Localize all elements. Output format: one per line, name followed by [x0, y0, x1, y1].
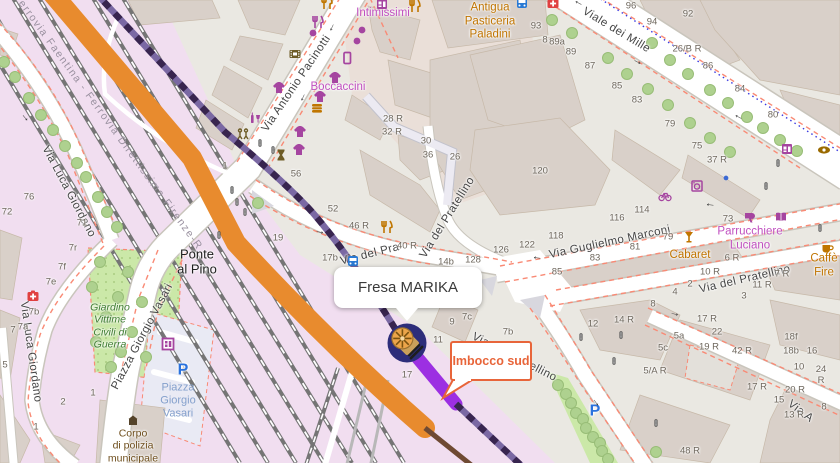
- tree: [722, 97, 734, 109]
- tlight-icon: [617, 331, 626, 340]
- callout-label: Imbocco sud: [452, 354, 529, 368]
- callout-joint: [455, 376, 471, 381]
- tlight-icon: [269, 146, 278, 155]
- tree: [642, 83, 654, 95]
- tree: [115, 346, 127, 358]
- police-icon: [126, 413, 140, 427]
- tree: [704, 132, 716, 144]
- cutlery-icon: [408, 0, 422, 13]
- tree: [92, 191, 104, 203]
- tree: [71, 157, 83, 169]
- tree: [646, 37, 658, 49]
- tree: [111, 221, 123, 233]
- cup-icon: [820, 241, 834, 255]
- wine-icon: [248, 111, 262, 125]
- bike-icon: [658, 189, 672, 203]
- tlight-icon: [241, 208, 250, 217]
- dryer-icon: [743, 210, 757, 224]
- eye-icon: [817, 143, 831, 157]
- map-canvas[interactable]: Via Antonio PacinottiViale dei MilleVia …: [0, 0, 840, 463]
- tlight-icon: [652, 419, 661, 428]
- popup-title: Fresa MARIKA: [358, 279, 458, 296]
- tree: [23, 92, 35, 104]
- tree: [704, 84, 716, 96]
- tree: [122, 266, 134, 278]
- phone-icon: [340, 51, 354, 65]
- tlight-icon: [215, 231, 224, 240]
- tree: [664, 54, 676, 66]
- cocktail-icon: [682, 230, 696, 244]
- tree: [546, 14, 558, 26]
- tlight-icon: [577, 333, 586, 342]
- tlight-icon: [762, 182, 771, 191]
- tree: [684, 117, 696, 129]
- cutlery-icon: [320, 0, 334, 10]
- tree: [724, 146, 736, 158]
- shopwin-icon: [780, 142, 794, 156]
- dot-icon: [306, 26, 320, 40]
- tree: [741, 111, 753, 123]
- tshirt-icon: [293, 125, 307, 139]
- bus-icon: [346, 254, 360, 268]
- dot-icon: [350, 34, 364, 48]
- tree: [140, 351, 152, 363]
- tree: [101, 206, 113, 218]
- tlight-icon: [774, 159, 783, 168]
- hospital-icon: [26, 289, 40, 303]
- tree: [35, 109, 47, 121]
- map-base-tiles: [0, 0, 840, 463]
- tbm-marker[interactable]: [386, 322, 428, 364]
- tshirt-icon: [328, 71, 342, 85]
- dot-icon: [721, 173, 731, 183]
- tree: [112, 291, 124, 303]
- tlight-icon: [233, 198, 242, 207]
- tshirt-icon: [292, 143, 306, 157]
- cutlery-icon: [380, 220, 394, 234]
- tree: [80, 171, 92, 183]
- tlight-icon: [816, 224, 825, 233]
- tree: [757, 122, 769, 134]
- tree: [621, 68, 633, 80]
- tree: [602, 52, 614, 64]
- hospital-icon: [546, 0, 560, 10]
- tree: [47, 124, 59, 136]
- imbocco-sud-callout[interactable]: Imbocco sud: [438, 338, 538, 402]
- tree: [86, 281, 98, 293]
- bus-icon: [515, 0, 529, 10]
- playground-icon: [236, 127, 250, 141]
- tlight-icon: [256, 139, 265, 148]
- tlight-icon: [610, 357, 619, 366]
- film-icon: [288, 47, 302, 61]
- burger-icon: [310, 101, 324, 115]
- tree: [105, 361, 117, 373]
- tree: [136, 296, 148, 308]
- tree: [682, 68, 694, 80]
- tshirt-icon: [272, 81, 286, 95]
- washer-icon: [690, 179, 704, 193]
- tree: [662, 99, 674, 111]
- tree: [602, 453, 614, 463]
- tree: [126, 326, 138, 338]
- museum-icon: [161, 337, 175, 351]
- tlight-icon: [228, 186, 237, 195]
- book-icon: [774, 210, 788, 224]
- tree: [9, 71, 21, 83]
- tree: [566, 27, 578, 39]
- map-popup[interactable]: Fresa MARIKA: [334, 267, 482, 308]
- tree: [59, 140, 71, 152]
- tree: [90, 336, 102, 348]
- tree: [94, 256, 106, 268]
- shopwin-icon: [375, 0, 389, 11]
- tree: [252, 197, 264, 209]
- tree: [650, 446, 662, 458]
- tree: [100, 311, 112, 323]
